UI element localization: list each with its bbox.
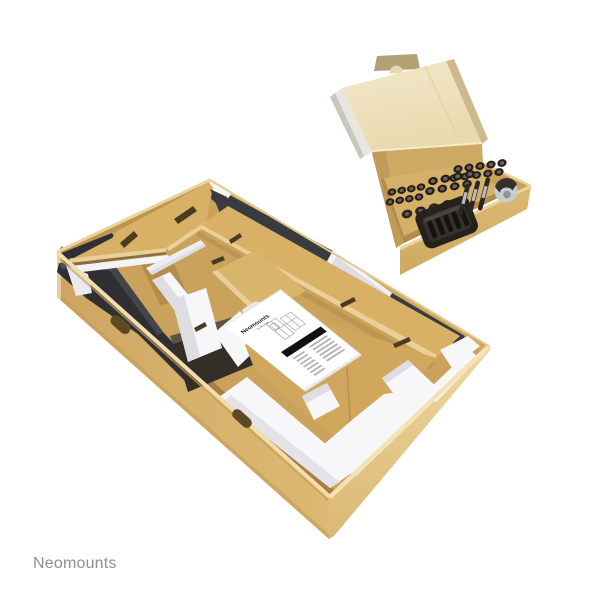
svg-text:Neomounts: Neomounts	[33, 555, 117, 572]
